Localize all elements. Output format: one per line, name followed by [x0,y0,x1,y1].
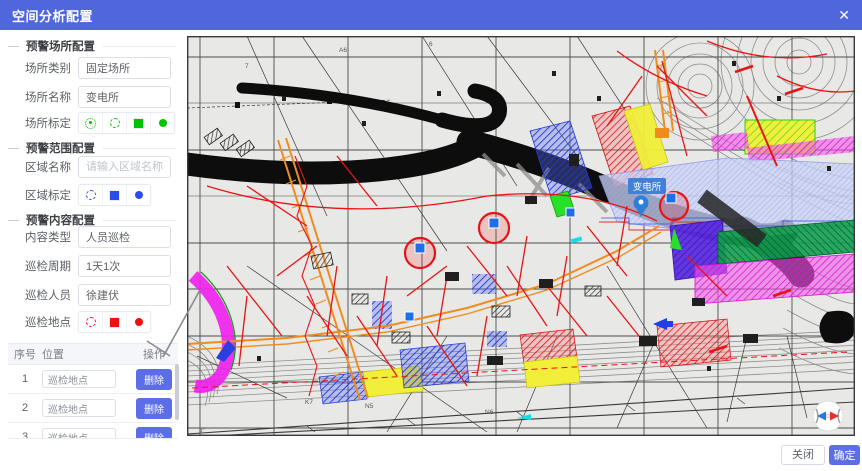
svg-text:K7: K7 [305,399,313,406]
content-type-input[interactable] [78,226,171,248]
content-type-label: 内容类型 [0,229,78,245]
field-patrol-point: 巡检地点 [0,311,186,333]
close-icon[interactable]: ✕ [838,8,850,22]
section-dash [8,148,19,149]
patrol-cycle-label: 巡检周期 [0,258,78,274]
svg-text:N5: N5 [365,403,374,410]
patrol-person-input[interactable] [78,284,171,306]
row-index: 3 [8,431,42,439]
area-marker-group [78,184,151,206]
place-marker-dot[interactable] [151,113,174,133]
field-place-type: 场所类别 [0,57,186,79]
header-action: 操作 [130,346,178,362]
patrol-person-label: 巡检人员 [0,287,78,303]
place-type-input[interactable] [78,57,171,79]
svg-text:3°: 3° [199,426,206,434]
area-marker-circle[interactable] [79,185,103,205]
patrol-marker-group [78,311,151,333]
patrol-square-marker[interactable] [415,243,425,253]
green-circle-icon [110,118,120,128]
section-divider [103,46,176,47]
table-scrollbar[interactable] [175,364,179,420]
svg-text:7: 7 [245,63,249,70]
red-dot-icon [135,318,143,326]
section-divider [103,148,176,149]
patrol-point-label: 巡检地点 [0,314,78,330]
field-place-mark: 场所标定 [0,112,186,134]
place-marker-square[interactable] [127,113,151,133]
site-plan-canvas[interactable]: 变电所 A6 6 7 K7 N5 N6 3° [187,36,855,436]
dialog-header: 空间分析配置 ✕ [0,0,862,30]
close-button[interactable]: 关闭 [781,445,825,465]
place-mark-label: 场所标定 [0,115,78,131]
place-marker-group [78,112,175,134]
field-area-mark: 区域标定 [0,184,186,206]
map-container: 变电所 A6 6 7 K7 N5 N6 3° [187,36,855,436]
blue-dot-icon [135,191,143,199]
section-place-config: 预警场所配置 [0,38,186,54]
section-title: 预警范围配置 [26,140,95,156]
patrol-point-table: 序号 位置 操作 1 删除 2 删除 3 删除 [8,343,178,439]
svg-text:6: 6 [429,41,433,48]
blue-circle-icon [86,190,96,200]
field-content-type: 内容类型 [0,226,186,248]
dialog-title: 空间分析配置 [12,6,93,25]
patrol-cycle-input[interactable] [78,255,171,277]
svg-text:A6: A6 [339,47,347,54]
field-area-name: 区域名称 [0,156,186,178]
compass-icon[interactable] [813,401,843,431]
table-row: 3 删除 [8,423,178,439]
svg-text:N6: N6 [485,409,494,416]
area-name-label: 区域名称 [0,159,78,175]
patrol-square-marker[interactable] [666,193,676,203]
row-location-input[interactable] [42,399,116,417]
section-title: 预警场所配置 [26,38,95,54]
table-row: 1 删除 [8,365,178,394]
place-marker-target[interactable] [79,113,103,133]
place-name-input[interactable] [78,86,171,108]
area-name-input[interactable] [78,156,171,178]
field-place-name: 场所名称 [0,86,186,108]
patrol-square-marker[interactable] [566,208,575,217]
delete-button[interactable]: 删除 [136,427,172,440]
patrol-marker-dot[interactable] [127,312,150,332]
row-location-input[interactable] [42,428,116,439]
table-header: 序号 位置 操作 [8,343,178,365]
header-index: 序号 [8,346,42,362]
green-target-icon [85,118,96,129]
area-mark-label: 区域标定 [0,187,78,203]
field-patrol-person: 巡检人员 [0,284,186,306]
section-dash [8,220,19,221]
red-circle-icon [86,317,96,327]
green-square-icon [134,119,143,128]
green-dot-icon [159,119,167,127]
area-marker-dot[interactable] [127,185,150,205]
place-type-label: 场所类别 [0,60,78,76]
section-range-config: 预警范围配置 [0,140,186,156]
patrol-marker-circle[interactable] [79,312,103,332]
blue-square-icon [110,191,119,200]
patrol-square-marker[interactable] [489,218,499,228]
delete-button[interactable]: 删除 [136,398,172,419]
patrol-marker-square[interactable] [103,312,127,332]
row-location-input[interactable] [42,370,116,388]
table-row: 2 删除 [8,394,178,423]
confirm-button[interactable]: 确定 [829,445,860,465]
delete-button[interactable]: 删除 [136,369,172,390]
field-patrol-cycle: 巡检周期 [0,255,186,277]
patrol-square-marker[interactable] [405,312,414,321]
section-dash [8,46,19,47]
place-marker-circle[interactable] [103,113,127,133]
place-name-label: 场所名称 [0,89,78,105]
red-square-icon [110,318,119,327]
row-index: 2 [8,402,42,414]
section-divider [103,220,176,221]
substation-tag-label: 变电所 [633,181,662,193]
header-location: 位置 [42,346,130,362]
area-marker-square[interactable] [103,185,127,205]
row-index: 1 [8,373,42,385]
